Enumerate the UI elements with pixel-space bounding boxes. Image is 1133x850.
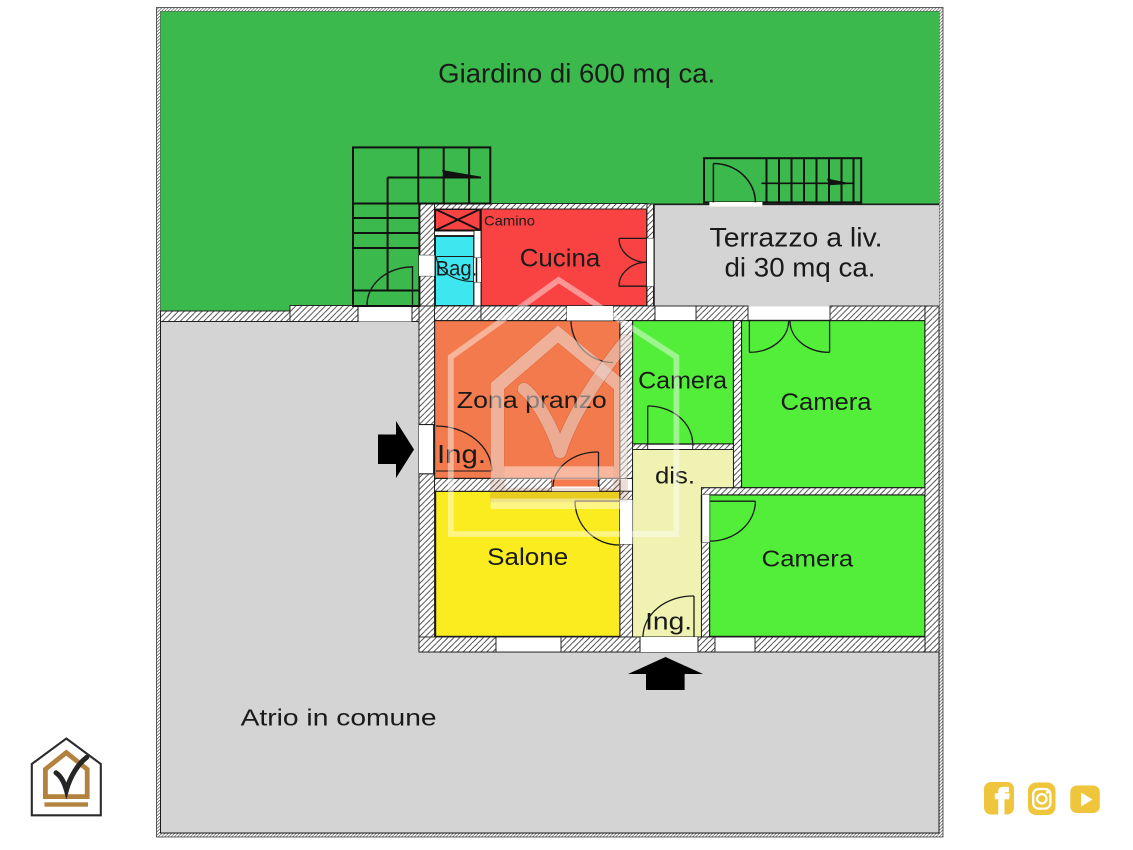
svg-text:Camera: Camera bbox=[762, 546, 854, 572]
svg-text:Camera: Camera bbox=[781, 389, 873, 416]
svg-text:Atrio in comune: Atrio in comune bbox=[241, 705, 437, 731]
svg-text:Ing.: Ing. bbox=[437, 439, 486, 469]
svg-text:Bag.: Bag. bbox=[436, 258, 478, 281]
svg-text:Ing.: Ing. bbox=[645, 609, 692, 636]
svg-text:Giardino di 600 mq ca.: Giardino di 600 mq ca. bbox=[438, 59, 715, 89]
svg-text:Cucina: Cucina bbox=[520, 244, 601, 272]
svg-text:Salone: Salone bbox=[487, 544, 568, 571]
svg-text:Camera: Camera bbox=[638, 368, 728, 395]
svg-text:Terrazzo a liv.: Terrazzo a liv. bbox=[710, 223, 883, 253]
svg-text:Camino: Camino bbox=[484, 213, 535, 229]
svg-text:di 30 mq ca.: di 30 mq ca. bbox=[725, 253, 876, 283]
